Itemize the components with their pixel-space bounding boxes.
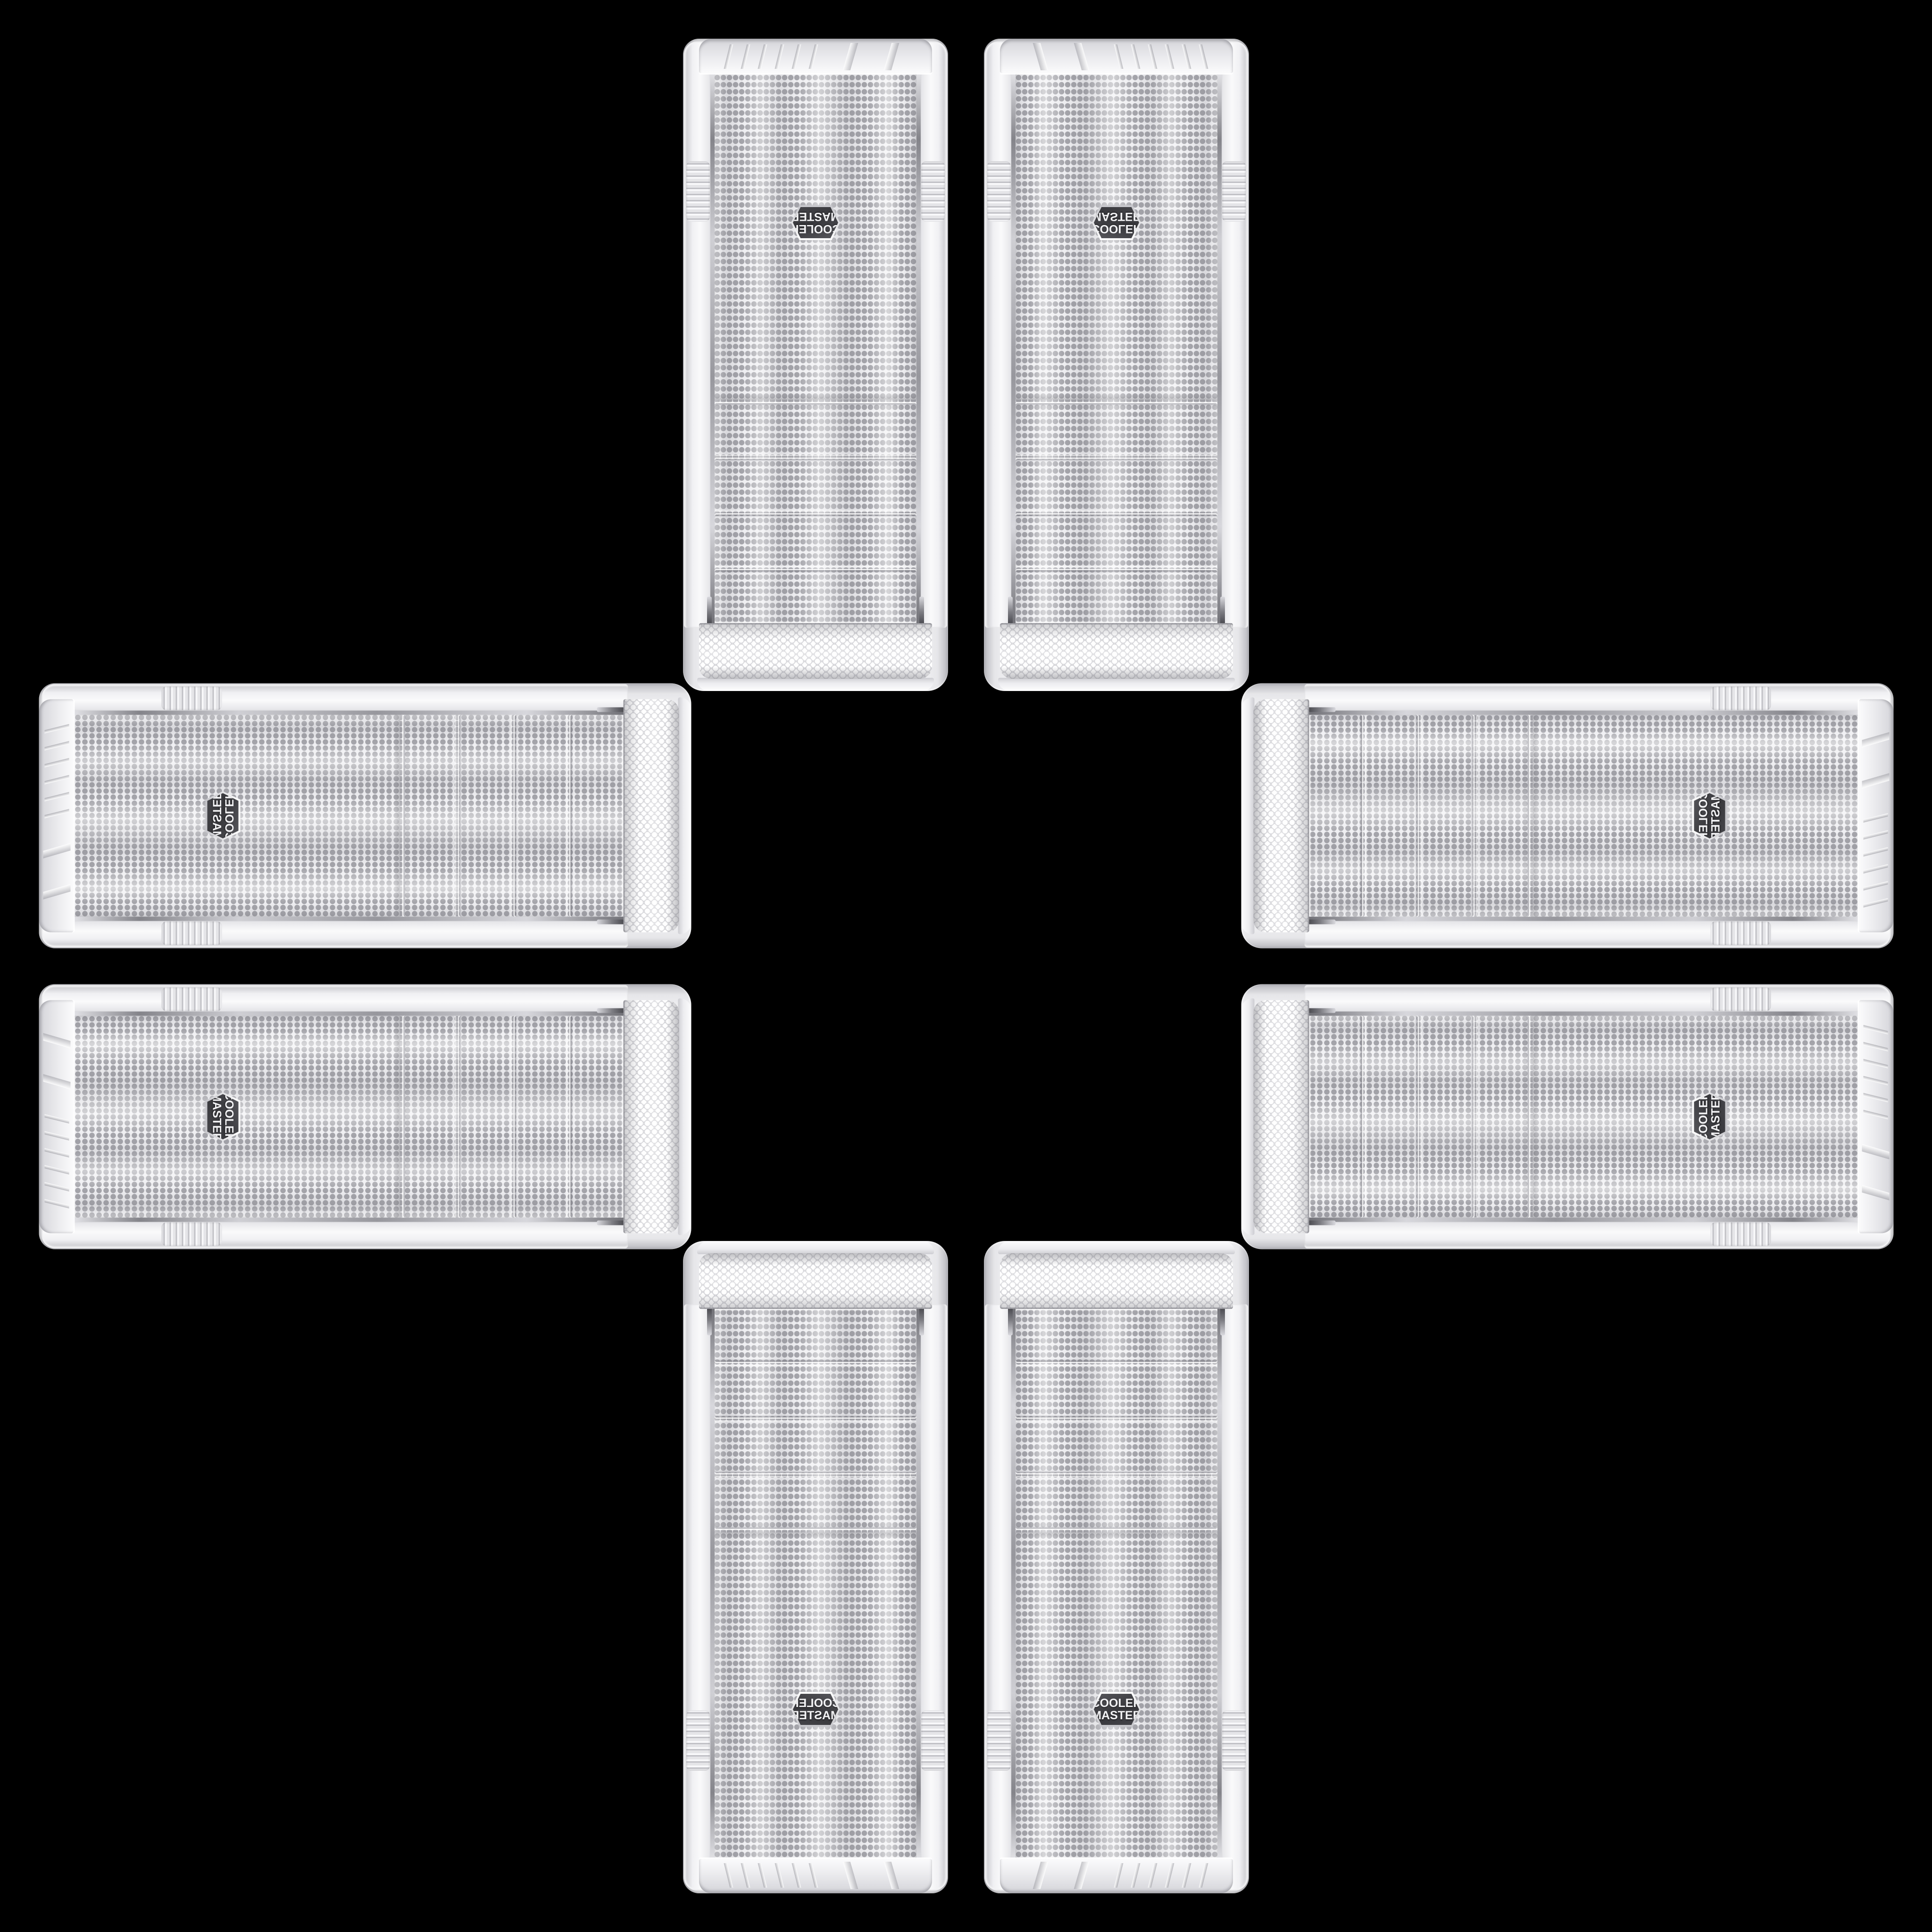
cap-notch-1 — [1033, 43, 1049, 70]
drive-bay-cover-2 — [1365, 715, 1417, 916]
cooler-master-badge: COOLER MASTER — [791, 205, 840, 240]
cap-fin-2 — [1863, 1093, 1888, 1102]
case-left-lower: COOLER MASTER — [39, 984, 691, 1249]
cooler-master-badge: COOLER MASTER — [1092, 205, 1141, 240]
case-bottom-left: COOLER MASTER — [683, 1241, 948, 1893]
cap-notch-1 — [884, 1862, 899, 1889]
badge-text-line1: COOLER — [1697, 1091, 1709, 1142]
side-rail-right — [1304, 919, 1890, 947]
cap-fin-5 — [1182, 44, 1191, 69]
drive-bay-cover-3 — [459, 715, 512, 916]
sculpted-bottom-cap — [39, 1000, 73, 1233]
top-edge-band — [678, 998, 691, 1235]
sculpted-bottom-cap — [699, 39, 932, 73]
chrome-trim-left — [1011, 73, 1016, 626]
chrome-trim-left — [1011, 1306, 1016, 1859]
drive-bay-cover-1 — [1016, 1309, 1217, 1362]
drive-bay-cover-3 — [1016, 1420, 1217, 1473]
chrome-trim-right — [73, 710, 626, 715]
sculpted-bottom-cap — [1859, 699, 1893, 932]
cap-fin-5 — [44, 741, 69, 750]
rounded-top-mesh-grille — [699, 1253, 932, 1309]
cap-fin-2 — [792, 1863, 801, 1888]
front-fan-mesh-grille: COOLER MASTER — [715, 1532, 916, 1859]
drive-bay-cover-2 — [715, 1365, 916, 1417]
drive-bay-cover-3 — [715, 1420, 916, 1473]
top-edge-band — [678, 697, 691, 934]
drive-bay-cover-4 — [1476, 1016, 1529, 1217]
chrome-trim-right — [710, 73, 715, 626]
cooler-master-badge: COOLER MASTER — [1092, 1692, 1141, 1727]
badge-text-line2: MASTER — [1091, 1709, 1141, 1722]
cap-fin-1 — [1863, 1110, 1888, 1119]
drive-bay-cover-4 — [715, 1476, 916, 1529]
cap-fin-1 — [44, 809, 69, 818]
chrome-trim-right — [1217, 73, 1222, 626]
cap-fin-4 — [44, 1165, 69, 1174]
rail-grip-ribs-right — [686, 1710, 710, 1771]
cap-notch-1 — [1862, 1185, 1889, 1200]
drive-bay-cover-1 — [1309, 715, 1362, 916]
badge-text-line2: MASTER — [791, 210, 841, 223]
badge-text-line1: COOLER — [1697, 791, 1709, 841]
drive-bay-cover-4 — [1476, 715, 1529, 916]
cap-notch-2 — [843, 43, 858, 70]
drive-bay-covers — [1016, 1309, 1217, 1532]
cap-fin-3 — [1863, 1076, 1888, 1085]
cap-fin-1 — [44, 1114, 69, 1124]
chrome-trim-left — [916, 1306, 921, 1859]
cap-fin-6 — [1199, 44, 1208, 69]
cap-fin-6 — [44, 724, 69, 733]
top-edge-band — [998, 1241, 1235, 1254]
drive-bay-cover-4 — [1016, 1476, 1217, 1529]
badge-text-line1: COOLER — [223, 791, 235, 841]
cap-notch-1 — [884, 43, 899, 70]
cap-fin-6 — [724, 1863, 733, 1888]
drive-bay-cover-3 — [1016, 459, 1217, 512]
side-rail-left — [42, 919, 628, 947]
cap-fin-1 — [809, 1863, 818, 1888]
rail-grip-ribs-right — [161, 1222, 222, 1246]
cap-fin-1 — [1114, 44, 1124, 69]
drive-bay-cover-4 — [403, 715, 456, 916]
sculpted-bottom-cap — [1859, 1000, 1893, 1233]
top-edge-band — [697, 678, 934, 691]
sculpted-bottom-cap — [1000, 1859, 1233, 1893]
cooler-master-badge: COOLER MASTER — [205, 1092, 240, 1141]
drive-bay-covers — [400, 715, 623, 916]
cap-fin-6 — [44, 1199, 69, 1208]
side-rail-right — [684, 42, 712, 628]
drive-bay-cover-1 — [715, 570, 916, 623]
case-right-upper: COOLER MASTER — [1241, 683, 1893, 948]
badge-text-line2: MASTER — [1709, 791, 1722, 841]
cap-fin-4 — [1165, 44, 1174, 69]
rail-grip-ribs-left — [921, 161, 945, 222]
rail-grip-ribs-left — [921, 1710, 945, 1771]
cap-notch-2 — [43, 1074, 70, 1090]
case-left-upper: COOLER MASTER — [39, 683, 691, 948]
chrome-trim-right — [1306, 916, 1859, 921]
side-rail-left — [919, 42, 947, 628]
rail-grip-ribs-right — [1710, 987, 1771, 1011]
cap-fin-1 — [1114, 1863, 1124, 1888]
rail-grip-ribs-right — [1222, 1710, 1246, 1771]
cap-fin-3 — [775, 44, 784, 69]
rail-grip-ribs-left — [1710, 686, 1771, 710]
cap-fin-6 — [1863, 1025, 1888, 1034]
rail-grip-ribs-left — [987, 1710, 1011, 1771]
cap-fin-2 — [1863, 830, 1888, 840]
cap-fin-6 — [1199, 1863, 1208, 1888]
drive-bay-covers — [715, 400, 916, 623]
cooler-master-badge-face: COOLER MASTER — [1094, 1694, 1139, 1725]
cap-notch-1 — [1862, 732, 1889, 748]
drive-bay-cover-1 — [570, 715, 623, 916]
side-rail-left — [1304, 684, 1890, 712]
case-collage-scene: COOLER MASTER — [0, 0, 1932, 1932]
case-right-lower: COOLER MASTER — [1241, 984, 1893, 1249]
cap-fin-2 — [44, 792, 69, 801]
cooler-master-badge-face: COOLER MASTER — [207, 1094, 238, 1139]
cooler-master-badge-face: COOLER MASTER — [1694, 1094, 1725, 1139]
cap-fin-5 — [44, 1182, 69, 1191]
rail-grip-ribs-left — [161, 921, 222, 945]
cap-fin-3 — [44, 1148, 69, 1158]
cap-notch-2 — [1862, 773, 1889, 789]
cap-fin-4 — [1863, 1059, 1888, 1068]
side-rail-right — [1220, 42, 1248, 628]
cap-fin-4 — [44, 758, 69, 767]
case-front-bezel: COOLER MASTER — [984, 1241, 1249, 1893]
cap-fin-3 — [775, 1863, 784, 1888]
cap-fin-1 — [809, 44, 818, 69]
case-front-bezel: COOLER MASTER — [683, 39, 948, 691]
badge-text-line1: COOLER — [791, 1697, 841, 1709]
rounded-top-mesh-grille — [623, 1000, 679, 1233]
case-front-bezel: COOLER MASTER — [683, 1241, 948, 1893]
front-fan-mesh-grille: COOLER MASTER — [1016, 1532, 1217, 1859]
top-edge-band — [998, 678, 1235, 691]
front-fan-mesh-grille: COOLER MASTER — [715, 73, 916, 400]
drive-bay-cover-4 — [715, 403, 916, 456]
cap-fin-3 — [1148, 44, 1158, 69]
cap-fin-2 — [44, 1131, 69, 1141]
badge-text-line1: COOLER — [791, 223, 841, 235]
front-fan-mesh-grille: COOLER MASTER — [1016, 73, 1217, 400]
top-edge-band — [697, 1241, 934, 1254]
rail-grip-ribs-left — [161, 987, 222, 1011]
drive-bay-cover-2 — [1016, 1365, 1217, 1417]
rail-grip-ribs-right — [686, 161, 710, 222]
drive-bay-cover-2 — [1365, 1016, 1417, 1217]
cap-fin-6 — [1863, 898, 1888, 908]
drive-bay-covers — [400, 1016, 623, 1217]
chrome-trim-left — [73, 916, 626, 921]
side-rail-left — [985, 1304, 1013, 1890]
badge-text-line2: MASTER — [1709, 1091, 1722, 1141]
side-rail-right — [1220, 1304, 1248, 1890]
drive-bay-covers — [1309, 715, 1532, 916]
chrome-trim-right — [73, 1217, 626, 1222]
cap-notch-2 — [843, 1862, 858, 1889]
sculpted-bottom-cap — [39, 699, 73, 932]
cooler-master-badge: COOLER MASTER — [791, 1692, 840, 1727]
rail-grip-ribs-right — [1222, 161, 1246, 222]
rounded-top-mesh-grille — [1000, 1253, 1233, 1309]
cap-fin-4 — [1863, 864, 1888, 874]
cap-notch-1 — [43, 1033, 70, 1049]
drive-bay-cover-2 — [715, 515, 916, 567]
cap-fin-5 — [1182, 1863, 1191, 1888]
cap-fin-2 — [1131, 1863, 1141, 1888]
cap-notch-2 — [43, 843, 70, 858]
top-edge-band — [1241, 998, 1254, 1235]
top-edge-band — [1241, 697, 1254, 934]
rounded-top-mesh-grille — [1253, 699, 1309, 932]
drive-bay-cover-4 — [403, 1016, 456, 1217]
side-rail-left — [1304, 1220, 1890, 1248]
cap-fin-3 — [1148, 1863, 1158, 1888]
case-front-bezel: COOLER MASTER — [1241, 984, 1893, 1249]
cap-fin-3 — [44, 775, 69, 784]
cooler-master-badge-face: COOLER MASTER — [207, 793, 238, 838]
badge-text-line2: MASTER — [210, 791, 223, 841]
case-top-left: COOLER MASTER — [683, 39, 948, 691]
drive-bay-covers — [715, 1309, 916, 1532]
drive-bay-cover-2 — [515, 1016, 567, 1217]
cooler-master-badge-face: COOLER MASTER — [793, 207, 838, 238]
badge-text-line1: COOLER — [223, 1091, 235, 1142]
rail-grip-ribs-left — [987, 161, 1011, 222]
side-rail-left — [985, 42, 1013, 628]
drive-bay-cover-1 — [570, 1016, 623, 1217]
cap-notch-2 — [1862, 1144, 1889, 1159]
case-front-bezel: COOLER MASTER — [39, 683, 691, 948]
chrome-trim-left — [1306, 1217, 1859, 1222]
cooler-master-badge: COOLER MASTER — [205, 791, 240, 840]
drive-bay-cover-3 — [459, 1016, 512, 1217]
drive-bay-cover-3 — [715, 459, 916, 512]
sculpted-bottom-cap — [1000, 39, 1233, 73]
drive-bay-cover-2 — [1016, 515, 1217, 567]
cap-fin-5 — [741, 44, 750, 69]
badge-text-line2: MASTER — [791, 1709, 841, 1722]
rounded-top-mesh-grille — [1253, 1000, 1309, 1233]
cap-fin-5 — [1863, 1042, 1888, 1051]
side-rail-right — [42, 1220, 628, 1248]
rail-grip-ribs-left — [1710, 1222, 1771, 1246]
drive-bay-cover-3 — [1420, 1016, 1473, 1217]
case-bottom-right: COOLER MASTER — [984, 1241, 1249, 1893]
front-fan-mesh-grille: COOLER MASTER — [1532, 715, 1859, 916]
side-rail-right — [42, 684, 628, 712]
side-rail-right — [1304, 985, 1890, 1013]
cap-fin-5 — [1863, 881, 1888, 891]
drive-bay-cover-1 — [1016, 570, 1217, 623]
badge-text-line2: MASTER — [210, 1091, 223, 1141]
cap-notch-1 — [1033, 1862, 1049, 1889]
rounded-top-mesh-grille — [699, 623, 932, 679]
cap-fin-4 — [1165, 1863, 1174, 1888]
case-front-bezel: COOLER MASTER — [39, 984, 691, 1249]
case-front-bezel: COOLER MASTER — [1241, 683, 1893, 948]
drive-bay-cover-3 — [1420, 715, 1473, 916]
drive-bay-cover-1 — [1309, 1016, 1362, 1217]
cooler-master-badge-face: COOLER MASTER — [1094, 207, 1139, 238]
sculpted-bottom-cap — [699, 1859, 932, 1893]
badge-text-line1: COOLER — [1091, 223, 1142, 235]
drive-bay-cover-2 — [515, 715, 567, 916]
cooler-master-badge-face: COOLER MASTER — [793, 1694, 838, 1725]
rounded-top-mesh-grille — [1000, 623, 1233, 679]
cap-notch-2 — [1074, 1862, 1090, 1889]
cap-fin-1 — [1863, 813, 1888, 823]
side-rail-left — [919, 1304, 947, 1890]
case-front-bezel: COOLER MASTER — [984, 39, 1249, 691]
cap-fin-2 — [792, 44, 801, 69]
drive-bay-covers — [1016, 400, 1217, 623]
cap-fin-2 — [1131, 44, 1141, 69]
case-top-right: COOLER MASTER — [984, 39, 1249, 691]
cap-fin-4 — [758, 1863, 767, 1888]
chrome-trim-right — [1217, 1306, 1222, 1859]
cap-fin-4 — [758, 44, 767, 69]
rounded-top-mesh-grille — [623, 699, 679, 932]
rail-grip-ribs-right — [161, 686, 222, 710]
side-rail-left — [42, 985, 628, 1013]
chrome-trim-right — [1306, 1011, 1859, 1016]
drive-bay-covers — [1309, 1016, 1532, 1217]
badge-text-line1: COOLER — [1091, 1697, 1142, 1709]
cap-fin-5 — [741, 1863, 750, 1888]
drive-bay-cover-4 — [1016, 403, 1217, 456]
cap-notch-1 — [43, 884, 70, 899]
front-fan-mesh-grille: COOLER MASTER — [73, 1016, 400, 1217]
chrome-trim-left — [916, 73, 921, 626]
chrome-trim-left — [1306, 710, 1859, 715]
cap-fin-6 — [724, 44, 733, 69]
rail-grip-ribs-right — [1710, 921, 1771, 945]
cooler-master-badge: COOLER MASTER — [1692, 791, 1727, 840]
badge-text-line2: MASTER — [1091, 210, 1141, 223]
front-fan-mesh-grille: COOLER MASTER — [1532, 1016, 1859, 1217]
drive-bay-cover-1 — [715, 1309, 916, 1362]
side-rail-right — [684, 1304, 712, 1890]
front-fan-mesh-grille: COOLER MASTER — [73, 715, 400, 916]
cap-fin-3 — [1863, 847, 1888, 857]
chrome-trim-left — [73, 1011, 626, 1016]
cooler-master-badge: COOLER MASTER — [1692, 1092, 1727, 1141]
cooler-master-badge-face: COOLER MASTER — [1694, 793, 1725, 838]
cap-notch-2 — [1074, 43, 1090, 70]
chrome-trim-right — [710, 1306, 715, 1859]
